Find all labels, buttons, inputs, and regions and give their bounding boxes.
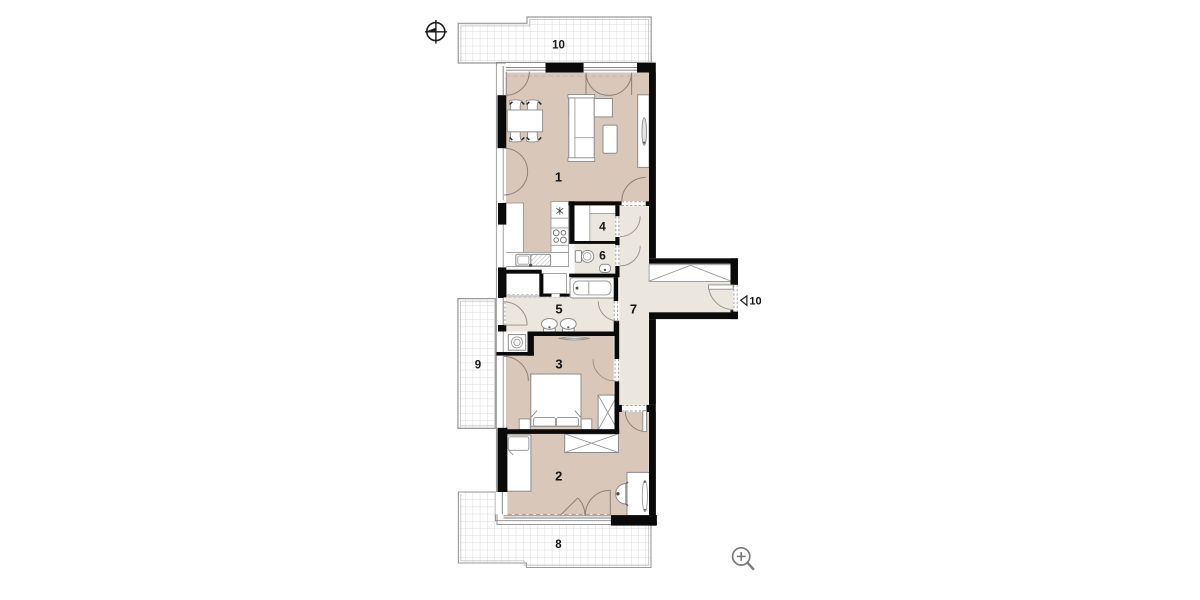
svg-text:2: 2 (555, 469, 562, 484)
svg-text:7: 7 (630, 302, 637, 317)
svg-text:6: 6 (599, 249, 606, 263)
svg-text:9: 9 (475, 360, 481, 372)
svg-text:3: 3 (555, 357, 562, 372)
svg-text:5: 5 (555, 302, 562, 317)
svg-text:10: 10 (749, 296, 761, 308)
svg-text:4: 4 (599, 220, 606, 234)
svg-text:1: 1 (555, 170, 562, 185)
svg-text:8: 8 (555, 539, 562, 551)
svg-text:10: 10 (552, 40, 565, 52)
